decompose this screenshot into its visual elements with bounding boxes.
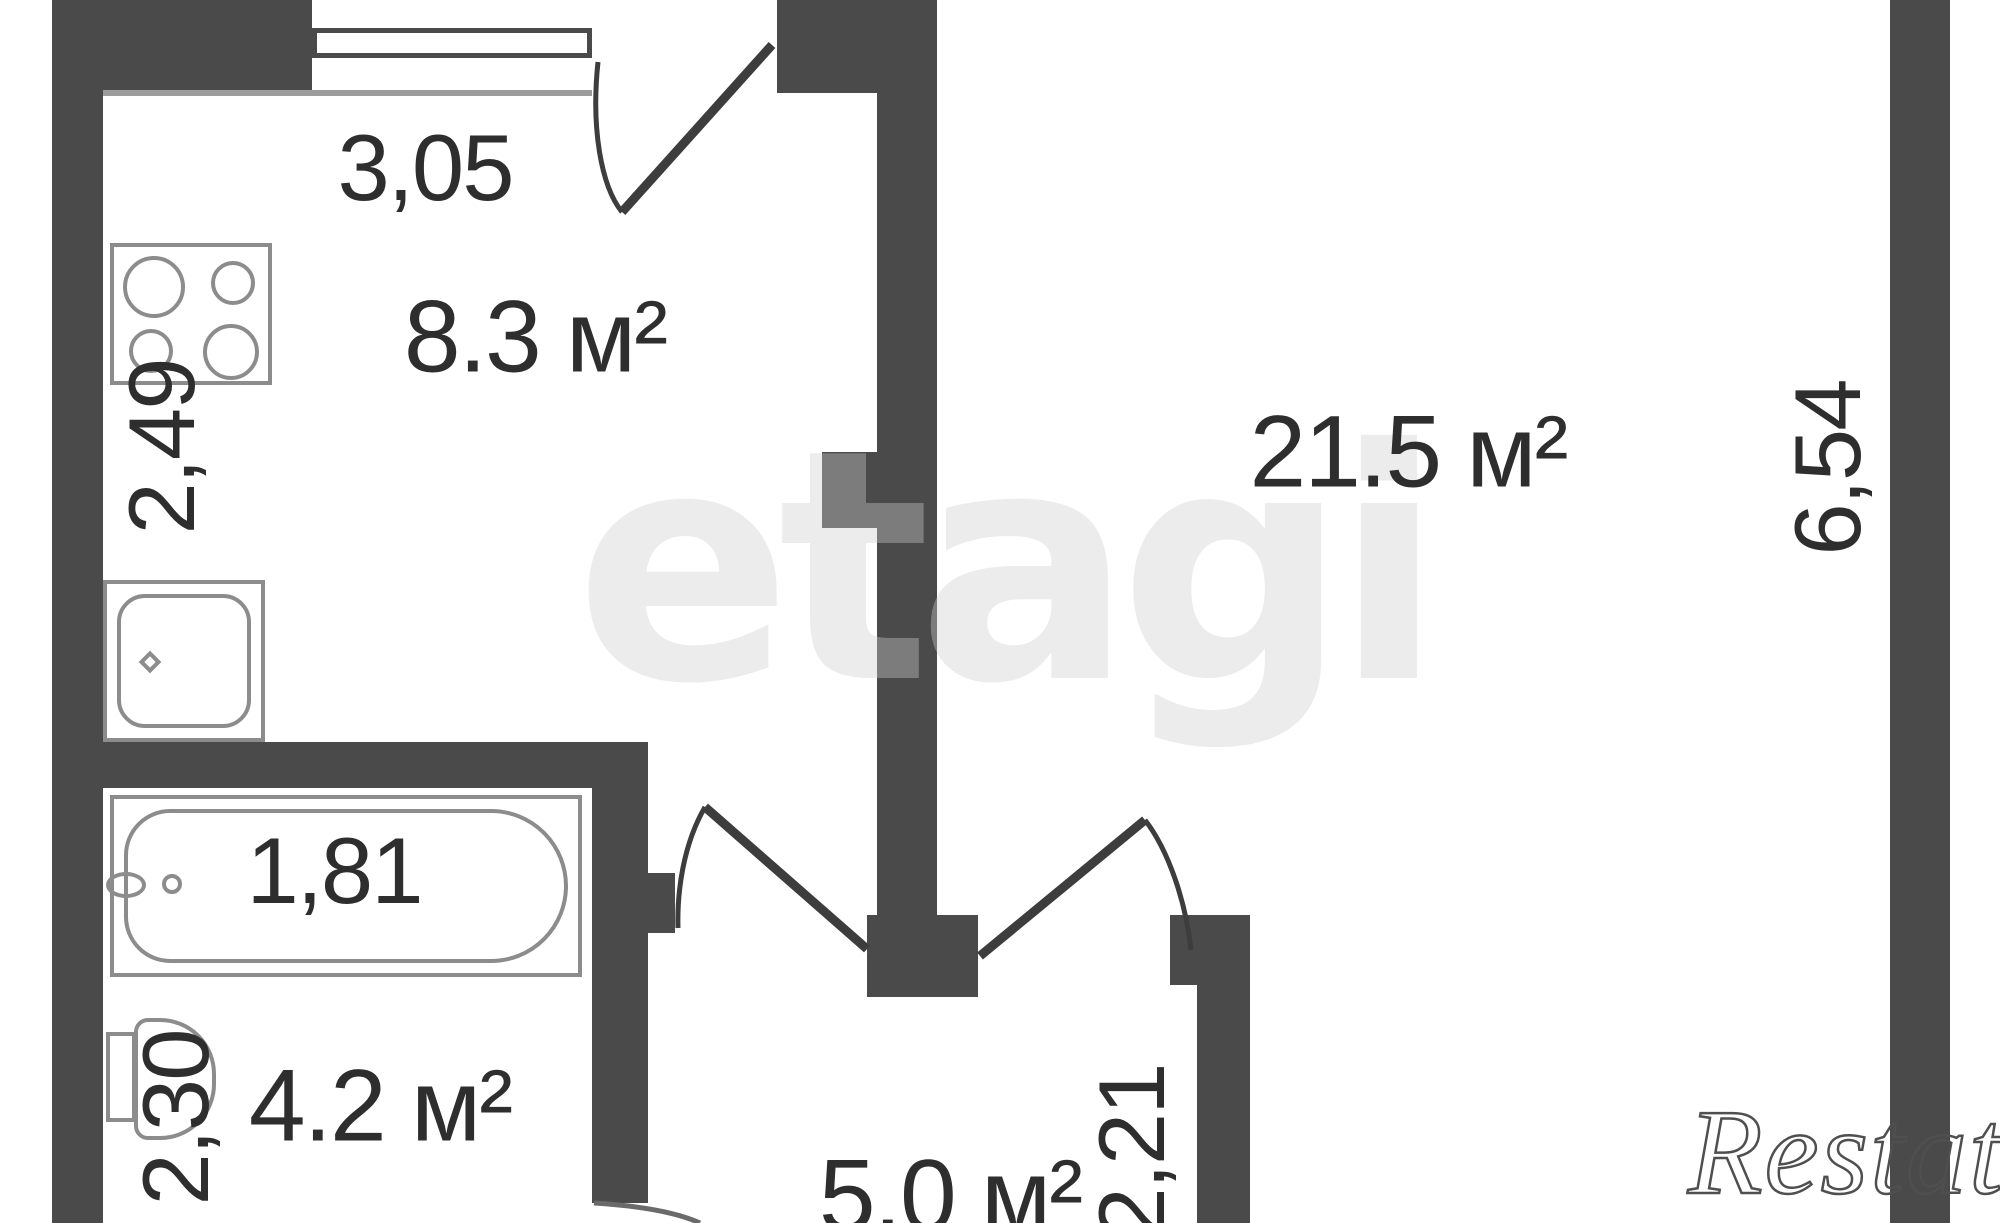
kitchen-width-label: 3,05 <box>338 114 513 222</box>
bathtub-length-label: 1,81 <box>247 817 422 925</box>
hall-right-door-arc-icon <box>1145 820 1191 950</box>
hall-width-label: 2,21 <box>1078 1065 1186 1223</box>
hall-left-door-arc-icon <box>678 807 705 928</box>
restate-watermark: Restate <box>1688 1092 2000 1214</box>
hall-right-door-leaf-icon <box>980 820 1145 956</box>
hall-left-door-leaf-icon <box>705 807 867 949</box>
kitchen-depth-label: 2,49 <box>108 360 216 535</box>
hall-basin-icon <box>594 1203 700 1223</box>
living-room-depth-label: 6,54 <box>1774 381 1882 556</box>
bathroom-area-label: 4.2 м² <box>249 1048 511 1165</box>
kitchen-door-leaf-icon <box>622 45 772 212</box>
floor-plan: etagi etagi 3,05 8.3 м² 2,49 <box>0 0 2000 1223</box>
kitchen-door-arc-icon <box>596 62 622 212</box>
hall-area-label: 5.0 м² <box>819 1138 1081 1223</box>
kitchen-area-label: 8.3 м² <box>404 279 666 396</box>
living-room-area-label: 21.5 м² <box>1250 394 1567 511</box>
bathroom-depth-label: 2,30 <box>122 1031 230 1206</box>
